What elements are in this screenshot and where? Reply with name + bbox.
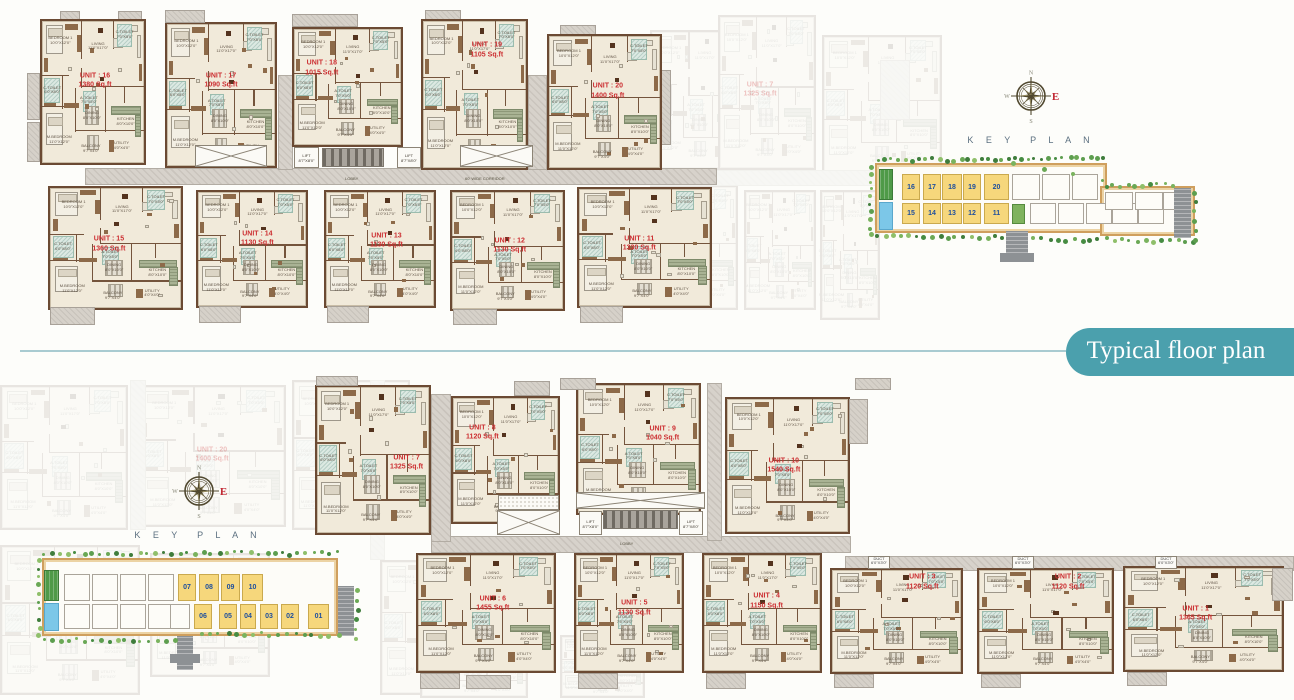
svg-text:S: S — [197, 514, 200, 520]
svg-text:N: N — [1029, 71, 1034, 77]
svg-text:S: S — [1029, 119, 1032, 125]
svg-text:N: N — [197, 466, 202, 472]
svg-text:E: E — [220, 486, 227, 498]
svg-text:W: W — [172, 489, 178, 495]
svg-text:E: E — [1052, 91, 1059, 103]
svg-text:W: W — [1004, 94, 1010, 100]
